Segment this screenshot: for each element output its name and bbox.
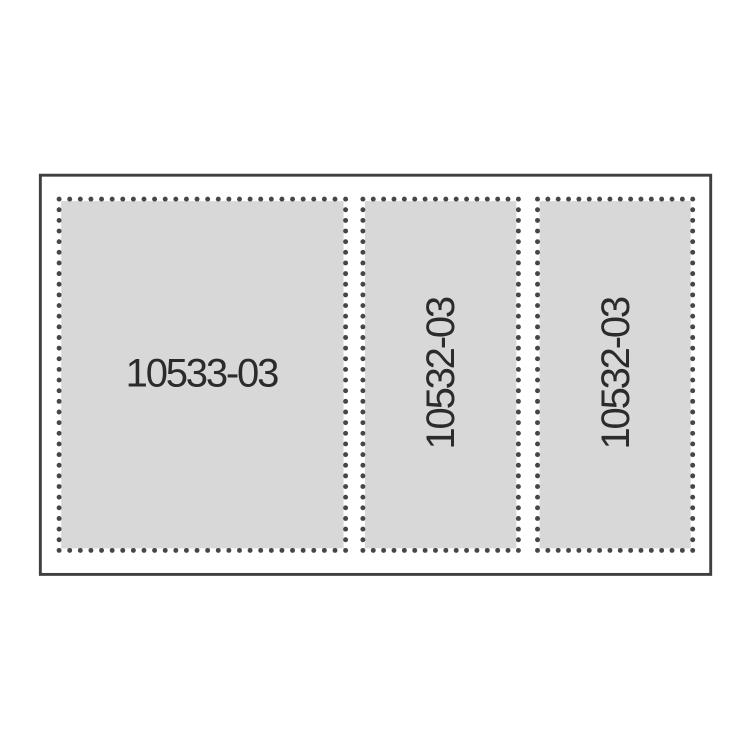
svg-text:10532-03: 10532-03 <box>419 297 463 449</box>
svg-text:10532-03: 10532-03 <box>594 297 638 449</box>
svg-text:10533-03: 10533-03 <box>126 352 278 396</box>
